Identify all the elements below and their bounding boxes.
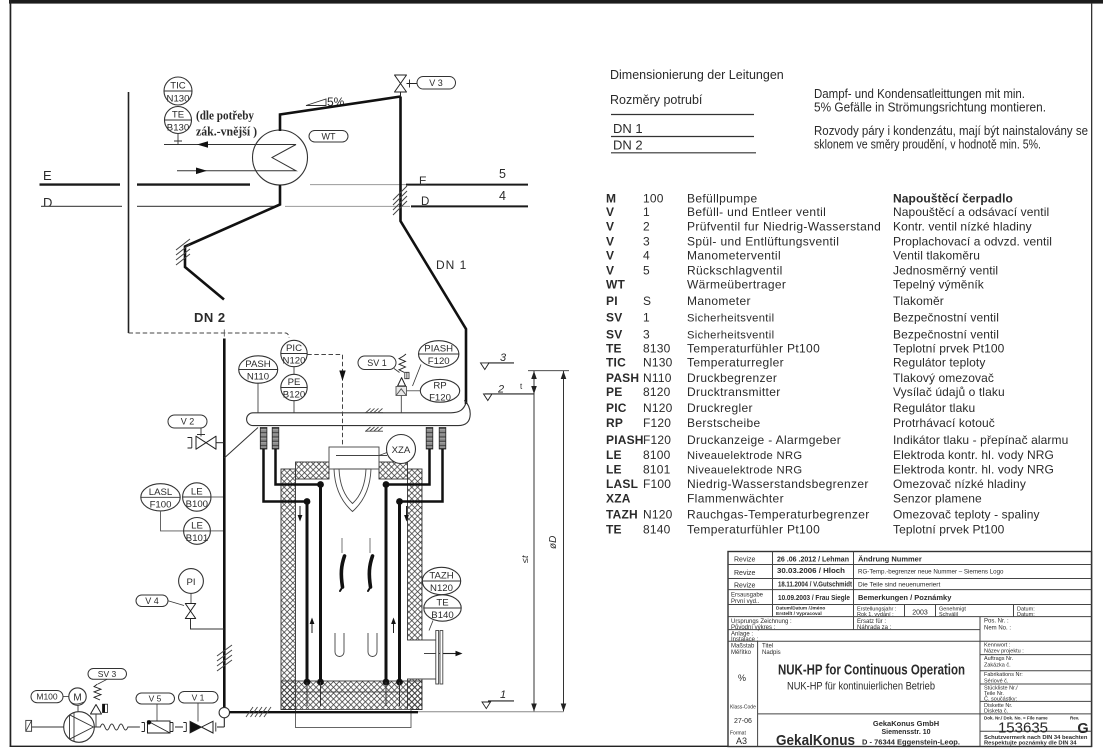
- svg-text:Auftrags Nr.: Auftrags Nr.: [984, 656, 1014, 662]
- svg-text:Bemerkungen / Poznámky: Bemerkungen / Poznámky: [858, 593, 952, 602]
- svg-text:V 1: V 1: [192, 692, 205, 702]
- svg-text:SV 1: SV 1: [367, 358, 387, 368]
- svg-text:Erstellt / Vypracoval: Erstellt / Vypracoval: [776, 611, 822, 617]
- svg-text:Temperaturfühler Pt100: Temperaturfühler Pt100: [687, 523, 820, 537]
- svg-text:Klass-Code: Klass-Code: [730, 705, 756, 711]
- svg-text:DN 2: DN 2: [194, 310, 226, 325]
- svg-text:sklonem ve směry proudění, v h: sklonem ve směry proudění, v hodnotě min…: [814, 138, 1041, 152]
- svg-text:F120: F120: [643, 433, 671, 447]
- svg-text:Jednosměrný ventil: Jednosměrný ventil: [893, 263, 998, 277]
- svg-text:Tlakoměr: Tlakoměr: [893, 294, 944, 308]
- svg-text:E: E: [43, 168, 52, 183]
- svg-text:zák.-vnější ): zák.-vnější ): [196, 125, 257, 139]
- svg-text:Disketa č.: Disketa č.: [984, 709, 1009, 715]
- svg-text:≤t: ≤t: [520, 555, 530, 563]
- svg-text:Niveauelektrode NRG: Niveauelektrode NRG: [687, 465, 802, 477]
- svg-text:RP: RP: [606, 416, 623, 430]
- svg-text:WT: WT: [322, 132, 336, 142]
- svg-text:Dampf- und Kondensatleittungen: Dampf- und Kondensatleittungen mit min.: [814, 87, 1025, 101]
- svg-text:V: V: [606, 249, 614, 263]
- svg-text:V 3: V 3: [429, 78, 443, 88]
- svg-text:3: 3: [643, 234, 650, 248]
- svg-text:10.09.2003 / Frau Siegle: 10.09.2003 / Frau Siegle: [778, 593, 850, 602]
- svg-text:Pos. Nr. :: Pos. Nr. :: [984, 619, 1009, 625]
- svg-text:F120: F120: [643, 416, 671, 430]
- svg-text:Fabrikations Nr:: Fabrikations Nr:: [984, 672, 1023, 678]
- svg-text:PI: PI: [606, 294, 618, 308]
- svg-text:Vysílač údajů o tlaku: Vysílač údajů o tlaku: [893, 385, 1005, 399]
- svg-text:Napouštěcí čerpadlo: Napouštěcí čerpadlo: [893, 191, 1013, 205]
- svg-text:Tepelný výměník: Tepelný výměník: [893, 278, 985, 292]
- svg-text:Senzor plamene: Senzor plamene: [893, 492, 982, 506]
- svg-text:SV: SV: [606, 311, 622, 325]
- svg-text:Kontr. ventil nízké hladiny: Kontr. ventil nízké hladiny: [893, 220, 1032, 234]
- svg-text:4: 4: [499, 189, 506, 203]
- svg-text:Rok 1. vydání :: Rok 1. vydání :: [857, 612, 894, 618]
- svg-text:TIC: TIC: [170, 81, 186, 92]
- svg-text:V: V: [606, 263, 614, 277]
- svg-text:Wärmeübertrager: Wärmeübertrager: [687, 278, 786, 292]
- svg-text:Napouštěcí a odsávací ventil: Napouštěcí a odsávací ventil: [893, 205, 1049, 219]
- svg-text:N120: N120: [643, 507, 673, 521]
- svg-text:8120: 8120: [643, 385, 671, 399]
- svg-text:3: 3: [643, 327, 650, 341]
- svg-text:PIASH: PIASH: [424, 344, 453, 355]
- svg-text:Befüllpumpe: Befüllpumpe: [687, 191, 758, 205]
- svg-text:TAZH: TAZH: [606, 507, 638, 521]
- svg-text:Titel: Titel: [762, 644, 773, 650]
- svg-text:LE: LE: [606, 463, 622, 477]
- svg-text:Druckanzeige - Alarmgeber: Druckanzeige - Alarmgeber: [687, 433, 841, 447]
- svg-text:XZA: XZA: [392, 445, 411, 456]
- svg-text:3: 3: [500, 352, 507, 364]
- svg-text:Teplotní prvek Pt100: Teplotní prvek Pt100: [893, 342, 1005, 356]
- svg-text:LE: LE: [191, 487, 203, 498]
- svg-text:PIC: PIC: [286, 343, 302, 354]
- svg-text:Náhrada za :: Náhrada za :: [857, 625, 892, 631]
- svg-text:5: 5: [499, 167, 506, 181]
- svg-text:Rozměry potrubí: Rozměry potrubí: [610, 93, 703, 107]
- svg-text:Sicherheitsventil: Sicherheitsventil: [687, 329, 774, 341]
- svg-text:TAZH: TAZH: [429, 571, 453, 582]
- svg-text:GekaKonus GmbH: GekaKonus GmbH: [873, 719, 939, 728]
- svg-text:První vyd..: První vyd..: [731, 599, 760, 605]
- svg-text:2003: 2003: [912, 610, 928, 617]
- svg-text:Indikátor tlaku - přepínač ala: Indikátor tlaku - přepínač alarmu: [893, 433, 1068, 447]
- svg-text:RP: RP: [433, 381, 446, 392]
- svg-text:Instalace :: Instalace :: [731, 637, 759, 643]
- svg-text:V 2: V 2: [181, 417, 195, 427]
- svg-text:N130: N130: [643, 356, 673, 370]
- svg-text:100: 100: [643, 191, 664, 205]
- svg-text:B101: B101: [186, 533, 208, 544]
- svg-text:V 5: V 5: [149, 694, 162, 704]
- svg-text:Sériové č.: Sériové č.: [984, 679, 1009, 685]
- svg-text:DN 1: DN 1: [436, 258, 467, 272]
- svg-text:SV: SV: [606, 327, 622, 341]
- svg-text:B130: B130: [167, 123, 189, 134]
- svg-text:Regulátor tlaku: Regulátor tlaku: [893, 401, 975, 415]
- svg-text:SV 3: SV 3: [98, 669, 117, 679]
- svg-text:XZA: XZA: [606, 492, 631, 506]
- svg-text:PIASH: PIASH: [606, 433, 644, 447]
- svg-text:Elektroda kontr. hl. vody NRG: Elektroda kontr. hl. vody NRG: [893, 463, 1054, 477]
- svg-text:Ersausgabe: Ersausgabe: [731, 593, 764, 599]
- svg-text:LE: LE: [191, 521, 203, 532]
- svg-text:Nadpis: Nadpis: [762, 650, 781, 656]
- svg-text:V: V: [606, 234, 614, 248]
- svg-text:PIC: PIC: [606, 401, 627, 415]
- svg-text:M: M: [73, 693, 81, 704]
- svg-text:Rev.: Rev.: [1070, 716, 1079, 721]
- svg-text:Ventil tlakoměru: Ventil tlakoměru: [893, 249, 980, 263]
- svg-text:DN 1: DN 1: [613, 121, 643, 136]
- svg-text:Befüll- und Entleer ventil: Befüll- und Entleer ventil: [687, 205, 826, 219]
- svg-text:5: 5: [643, 263, 650, 277]
- svg-text:F120: F120: [428, 356, 450, 367]
- svg-text:Spül- und Entlüftungsventil: Spül- und Entlüftungsventil: [687, 234, 839, 248]
- svg-text:Bezpečnostní ventil: Bezpečnostní ventil: [893, 311, 999, 325]
- svg-text:Č. součástky:: Č. součástky:: [984, 696, 1017, 703]
- svg-text:Rozvody páry i kondenzátu, maj: Rozvody páry i kondenzátu, mají být nain…: [814, 124, 1088, 138]
- svg-text:1: 1: [643, 311, 650, 325]
- svg-text:Elektroda kontr. hl. vody NRG: Elektroda kontr. hl. vody NRG: [893, 448, 1054, 462]
- svg-text:RG-Temp.-begrenzer neue Nummer: RG-Temp.-begrenzer neue Nummer – Siemens…: [858, 569, 1004, 576]
- svg-text:1: 1: [643, 205, 650, 219]
- svg-text:Protrhávací kotouč: Protrhávací kotouč: [893, 416, 995, 430]
- svg-text:LASL: LASL: [149, 487, 173, 498]
- svg-text:Revize: Revize: [734, 557, 756, 564]
- svg-text:N120: N120: [430, 583, 453, 594]
- svg-text:N110: N110: [643, 371, 672, 385]
- svg-text:D - 76344 Eggenstein-Leop.: D - 76344 Eggenstein-Leop.: [862, 738, 960, 747]
- svg-text:Dimensionierung der Leitungen: Dimensionierung der Leitungen: [610, 68, 784, 82]
- svg-text:E: E: [419, 176, 427, 188]
- svg-text:Drucktransmitter: Drucktransmitter: [687, 385, 781, 399]
- svg-text:Rauchgas-Temperaturbegrenzer: Rauchgas-Temperaturbegrenzer: [687, 507, 870, 521]
- svg-text:8100: 8100: [643, 448, 671, 462]
- svg-text:Měřítko: Měřítko: [731, 650, 752, 656]
- svg-text:4: 4: [643, 249, 650, 263]
- svg-text:N120: N120: [643, 401, 673, 415]
- svg-text:8101: 8101: [643, 463, 671, 477]
- svg-text:B120: B120: [283, 390, 305, 401]
- svg-text:18.11.2004 / V.Gutschmidt: 18.11.2004 / V.Gutschmidt: [778, 580, 852, 589]
- svg-text:TE: TE: [172, 110, 184, 121]
- svg-text:Die Teile sind neuenumeriert: Die Teile sind neuenumeriert: [858, 582, 940, 589]
- svg-text:B140: B140: [431, 610, 453, 621]
- svg-text:S: S: [643, 294, 651, 308]
- svg-text:Schválil: Schválil: [939, 612, 958, 618]
- svg-text:Druckregler: Druckregler: [687, 401, 753, 415]
- svg-text:8140: 8140: [643, 523, 671, 537]
- svg-text:F100: F100: [643, 477, 671, 491]
- svg-text:V: V: [606, 220, 614, 234]
- svg-text:Bezpečnostní ventil: Bezpečnostní ventil: [893, 327, 999, 341]
- svg-text:1: 1: [500, 689, 506, 701]
- svg-text:LE: LE: [606, 448, 622, 462]
- svg-text:Siemensstr. 10: Siemensstr. 10: [881, 729, 930, 736]
- svg-text:Temperaturfühler Pt100: Temperaturfühler Pt100: [687, 342, 820, 356]
- svg-text:TE: TE: [606, 342, 622, 356]
- svg-text:Temperaturregler: Temperaturregler: [687, 356, 784, 370]
- svg-text:M: M: [606, 191, 616, 205]
- svg-text:27-06: 27-06: [734, 718, 752, 725]
- svg-text:Prüfventil fur Niedrig-Wassers: Prüfventil fur Niedrig-Wasserstand: [687, 220, 881, 234]
- svg-text:TE: TE: [606, 523, 622, 537]
- svg-text:Rückschlagventil: Rückschlagventil: [687, 263, 783, 277]
- svg-text:Nem No. :: Nem No. :: [984, 626, 1011, 632]
- svg-text:N110: N110: [247, 372, 269, 383]
- svg-text:M100: M100: [36, 692, 58, 702]
- svg-text:Druckbegrenzer: Druckbegrenzer: [687, 371, 777, 385]
- svg-text:PASH: PASH: [606, 371, 639, 385]
- svg-text:PE: PE: [606, 385, 622, 399]
- svg-text:Datum/Datum /Jméno: Datum/Datum /Jméno: [776, 606, 825, 612]
- svg-text:26 .06 .2012 / Lehman: 26 .06 .2012 / Lehman: [777, 555, 849, 564]
- svg-text:Ändrung Nummer: Ändrung Nummer: [858, 555, 922, 564]
- svg-text:Flammenwächter: Flammenwächter: [687, 492, 784, 506]
- svg-text:DN 2: DN 2: [613, 138, 643, 153]
- svg-text:Omezovač nízké hladiny: Omezovač nízké hladiny: [893, 477, 1026, 491]
- svg-text:V 4: V 4: [145, 596, 159, 606]
- svg-text:F120: F120: [429, 393, 451, 404]
- svg-text:Regulátor teploty: Regulátor teploty: [893, 356, 985, 370]
- svg-text:V: V: [606, 205, 614, 219]
- svg-text:PASH: PASH: [245, 359, 270, 370]
- svg-text:D: D: [43, 195, 52, 210]
- svg-text:Revize: Revize: [734, 570, 756, 577]
- svg-text:Omezovač teploty - spaliny: Omezovač teploty - spaliny: [893, 507, 1040, 521]
- svg-text:5% Gefälle in Strömungsrichtun: 5% Gefälle in Strömungsrichtung montiere…: [814, 101, 1046, 115]
- svg-text:NUK-HP for Continuous Operatio: NUK-HP for Continuous Operation: [778, 663, 965, 679]
- svg-text:GekalKonus: GekalKonus: [776, 732, 855, 749]
- svg-text:PE: PE: [288, 377, 301, 388]
- svg-text:Respektujte poznámky dle DIN 3: Respektujte poznámky dle DIN 34: [984, 741, 1077, 747]
- svg-text:Název projektu :: Název projektu :: [984, 649, 1024, 655]
- svg-text:B100: B100: [186, 499, 208, 510]
- svg-text:N130: N130: [167, 94, 190, 105]
- svg-text:%: %: [738, 673, 746, 683]
- svg-text:Niveauelektrode NRG: Niveauelektrode NRG: [687, 450, 802, 462]
- svg-text:A3: A3: [736, 736, 747, 746]
- svg-text:Manometer: Manometer: [687, 294, 751, 308]
- svg-text:30.03.2006 / Hloch: 30.03.2006 / Hloch: [777, 566, 845, 575]
- svg-text:TE: TE: [436, 598, 448, 609]
- svg-text:Manometerventil: Manometerventil: [687, 249, 781, 263]
- svg-text:øD: øD: [548, 536, 559, 549]
- svg-text:N120: N120: [283, 356, 306, 367]
- svg-text:Teplotní prvek Pt100: Teplotní prvek Pt100: [893, 523, 1005, 537]
- svg-text:Maßstab: Maßstab: [731, 644, 755, 650]
- svg-text:F100: F100: [150, 500, 172, 511]
- svg-text:Berstscheibe: Berstscheibe: [687, 416, 761, 430]
- svg-text:Niedrig-Wasserstandsbegrenzer: Niedrig-Wasserstandsbegrenzer: [687, 477, 869, 491]
- svg-text:NUK-HP für kontinuierlichen Be: NUK-HP für kontinuierlichen Betrieb: [787, 681, 935, 693]
- svg-text:(dle potřeby: (dle potřeby: [196, 109, 255, 123]
- svg-text:Zakázka č.: Zakázka č.: [984, 663, 1011, 669]
- svg-text:8130: 8130: [643, 342, 671, 356]
- svg-text:Původní výkres :: Původní výkres :: [731, 624, 776, 631]
- svg-text:Revize: Revize: [734, 583, 756, 590]
- svg-text:Proplachovací a odvzd. ventil: Proplachovací a odvzd. ventil: [893, 234, 1052, 248]
- svg-text:PI: PI: [186, 577, 195, 588]
- svg-text:2: 2: [643, 220, 650, 234]
- svg-text:TIC: TIC: [606, 356, 626, 370]
- svg-text:D: D: [421, 196, 429, 208]
- svg-text:WT: WT: [606, 278, 626, 292]
- svg-text:Tlakový omezovač: Tlakový omezovač: [893, 371, 994, 385]
- svg-text:Datum:: Datum:: [1017, 612, 1035, 618]
- svg-text:LASL: LASL: [606, 477, 638, 491]
- svg-text:Sicherheitsventil: Sicherheitsventil: [687, 313, 774, 325]
